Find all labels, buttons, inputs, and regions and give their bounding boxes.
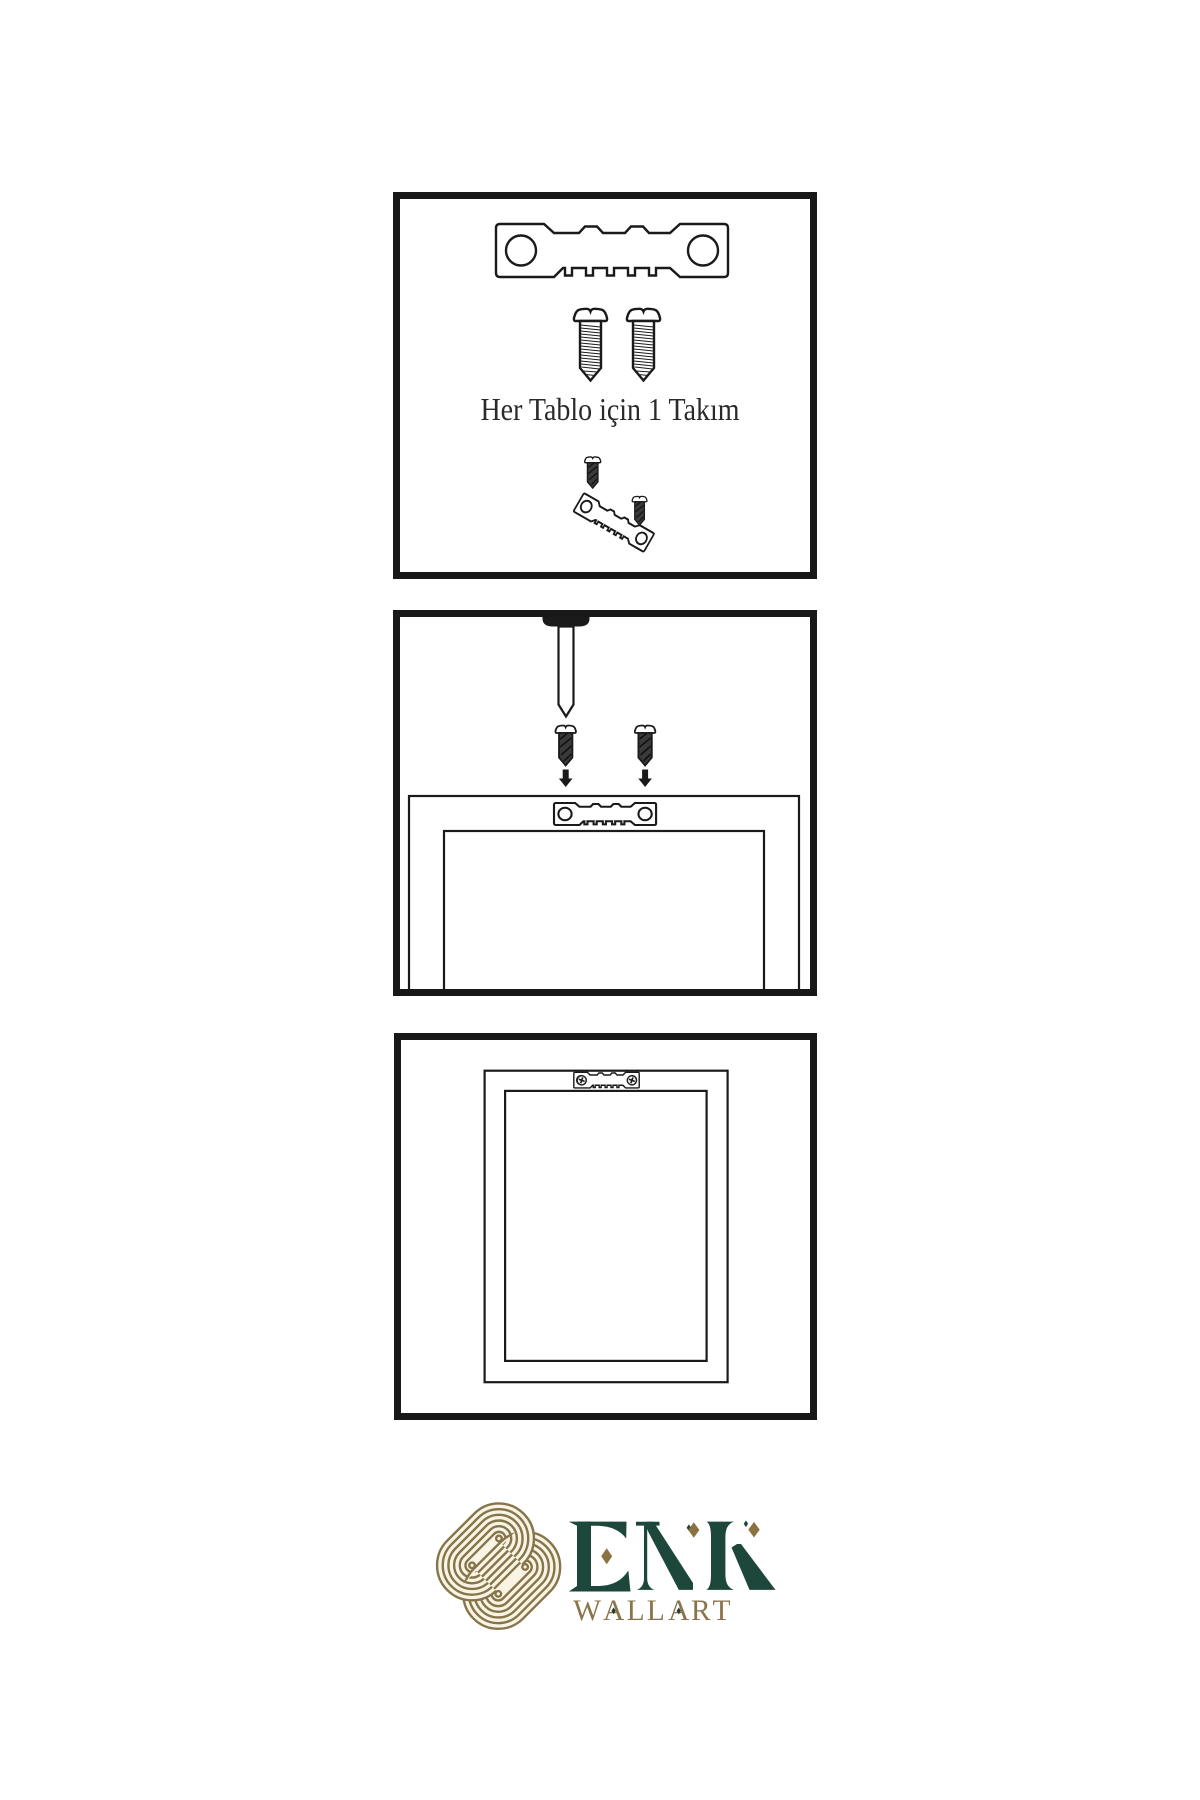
svg-text:R: R — [691, 1595, 711, 1627]
svg-text:Her Tablo için 1 Takım: Her Tablo için 1 Takım — [481, 391, 740, 427]
svg-text:L: L — [647, 1595, 665, 1627]
svg-text:T: T — [712, 1595, 730, 1627]
svg-text:W: W — [573, 1595, 601, 1627]
svg-text:L: L — [627, 1595, 645, 1627]
